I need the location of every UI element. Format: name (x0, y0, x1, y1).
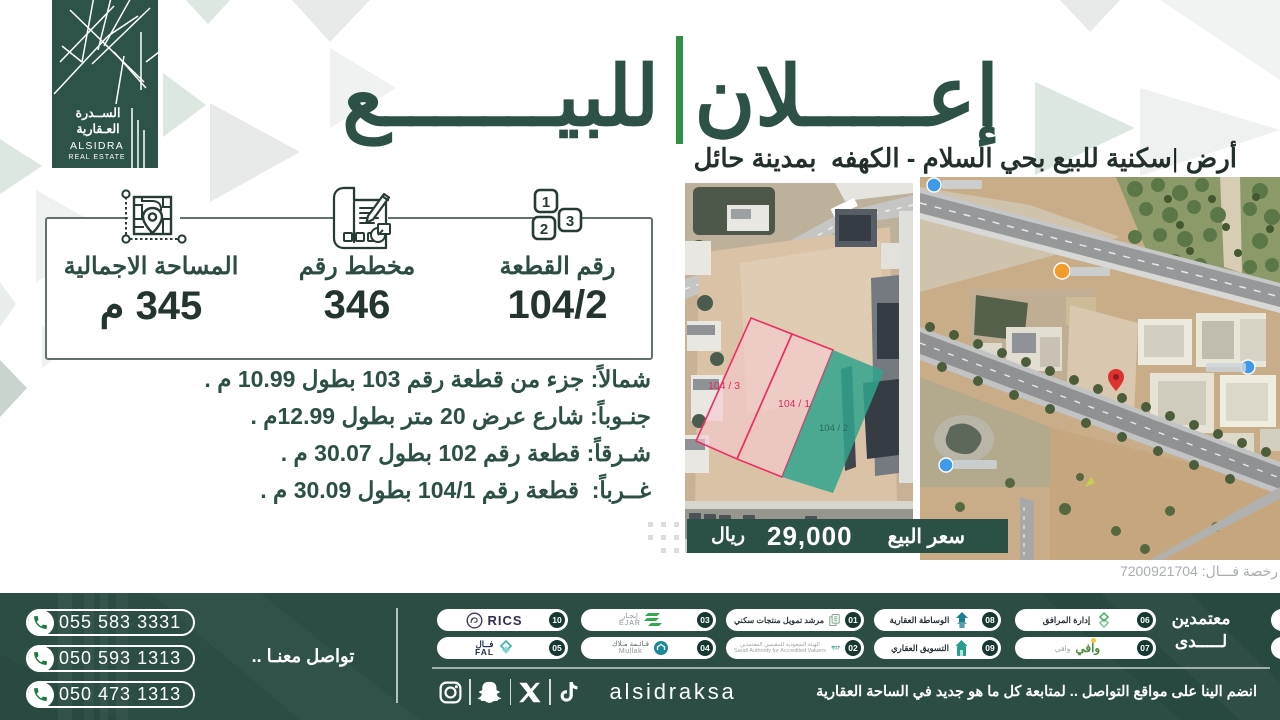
svg-text:1: 1 (542, 194, 550, 211)
svg-text:REAL ESTATE: REAL ESTATE (68, 154, 125, 161)
svg-text:TAQEEM: TAQEEM (832, 648, 840, 651)
svg-text:3: 3 (566, 213, 574, 230)
svg-text:104 / 1: 104 / 1 (778, 398, 810, 410)
svg-text:104 / 3: 104 / 3 (708, 380, 740, 392)
svg-text:104 / 2: 104 / 2 (819, 423, 848, 434)
svg-text:2: 2 (540, 221, 548, 238)
svg-text:الســدرة: الســدرة (76, 106, 121, 121)
svg-text:العـقارية: العـقارية (76, 122, 119, 137)
svg-text:ALSIDRA: ALSIDRA (70, 140, 124, 152)
